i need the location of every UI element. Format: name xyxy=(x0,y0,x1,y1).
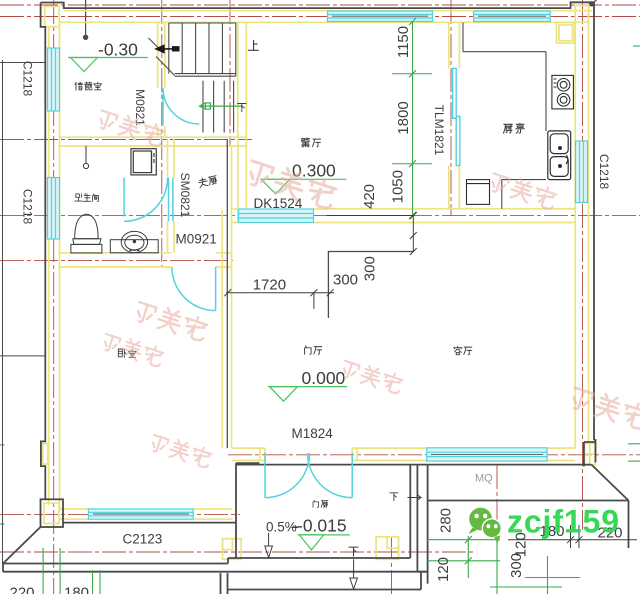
svg-text:1150: 1150 xyxy=(395,26,412,58)
svg-text:1720: 1720 xyxy=(253,277,286,294)
svg-text:0.000: 0.000 xyxy=(302,368,346,388)
svg-text:zcjf159: zcjf159 xyxy=(507,504,619,540)
svg-text:0.5%: 0.5% xyxy=(266,520,297,535)
svg-text:C2123: C2123 xyxy=(123,532,163,547)
svg-text:120: 120 xyxy=(435,557,452,582)
svg-text:1800: 1800 xyxy=(395,101,412,134)
svg-text:1050: 1050 xyxy=(390,170,407,203)
svg-text:SM0821: SM0821 xyxy=(178,173,192,218)
svg-text:C1218: C1218 xyxy=(21,189,35,225)
svg-text:M0921: M0921 xyxy=(176,232,217,247)
svg-text:-0.015: -0.015 xyxy=(297,516,347,536)
svg-text:MQ: MQ xyxy=(475,473,493,485)
svg-text:-0.30: -0.30 xyxy=(98,40,138,60)
svg-text:300: 300 xyxy=(362,256,379,281)
svg-text:TLM1821: TLM1821 xyxy=(432,105,446,156)
svg-text:280: 280 xyxy=(438,508,455,533)
svg-text:C1218: C1218 xyxy=(597,154,611,190)
svg-text:M1824: M1824 xyxy=(292,426,334,441)
svg-text:180: 180 xyxy=(64,585,89,594)
svg-text:300: 300 xyxy=(508,553,525,578)
svg-text:220: 220 xyxy=(9,585,34,594)
svg-text:420: 420 xyxy=(361,184,378,209)
svg-text:C1218: C1218 xyxy=(21,61,35,97)
svg-text:300: 300 xyxy=(333,272,358,289)
